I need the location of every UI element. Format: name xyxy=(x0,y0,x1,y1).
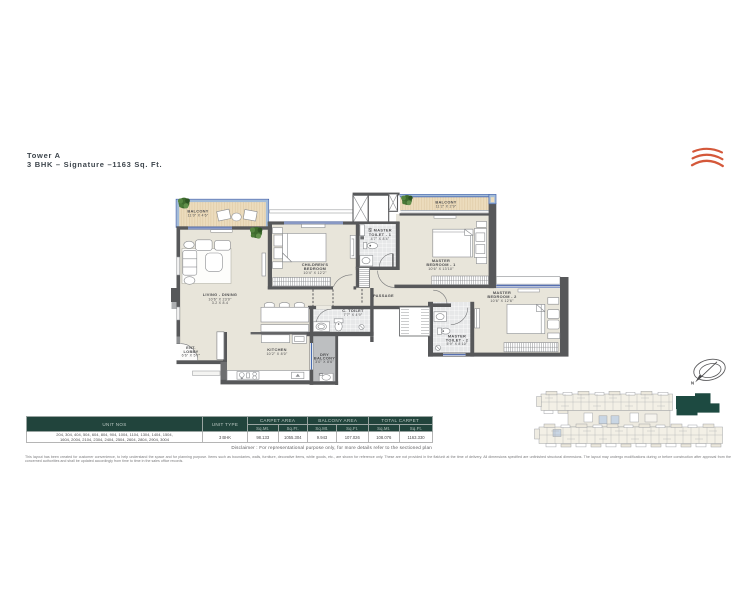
svg-text:N: N xyxy=(691,381,694,386)
svg-text:3.2 X 8.4: 3.2 X 8.4 xyxy=(212,301,228,305)
svg-text:10'2" X 8'0": 10'2" X 8'0" xyxy=(266,352,288,356)
svg-text:10'4" X 12'2": 10'4" X 12'2" xyxy=(303,271,327,275)
svg-text:10'6" X 13'10": 10'6" X 13'10" xyxy=(428,267,454,271)
svg-text:PASSAGE: PASSAGE xyxy=(373,293,394,298)
svg-text:5'9" X 8'10": 5'9" X 8'10" xyxy=(446,342,468,346)
svg-text:11'2" X 2'9": 11'2" X 2'9" xyxy=(436,204,457,208)
svg-text:7'7" X 4'9": 7'7" X 4'9" xyxy=(344,313,363,317)
svg-text:11'0" X 4'6": 11'0" X 4'6" xyxy=(188,214,209,218)
svg-text:6'6" X 5'7": 6'6" X 5'7" xyxy=(182,354,201,358)
svg-text:10'6" X 12'6": 10'6" X 12'6" xyxy=(490,299,514,303)
svg-text:3'0" X 8'6": 3'0" X 8'6" xyxy=(315,360,334,364)
svg-text:4'7" X 8'4": 4'7" X 8'4" xyxy=(371,237,390,241)
